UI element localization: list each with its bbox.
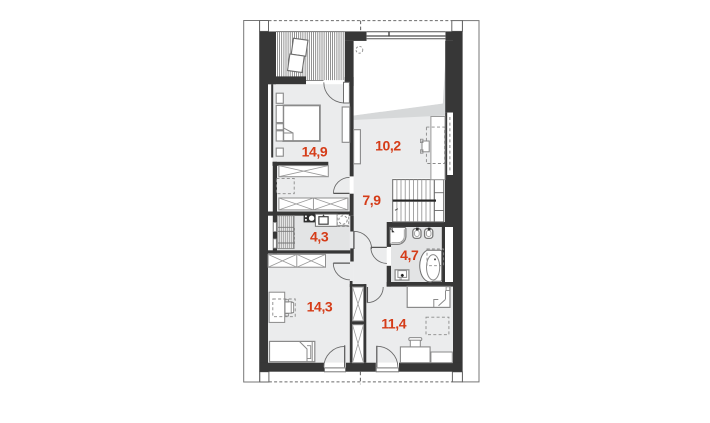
svg-text:7,9: 7,9	[362, 192, 381, 208]
svg-text:14,3: 14,3	[307, 298, 333, 314]
svg-text:11,4: 11,4	[381, 315, 406, 331]
svg-text:4,7: 4,7	[400, 247, 419, 263]
svg-text:4,3: 4,3	[310, 229, 329, 245]
svg-text:10,2: 10,2	[375, 137, 401, 153]
svg-text:14,9: 14,9	[302, 143, 328, 159]
